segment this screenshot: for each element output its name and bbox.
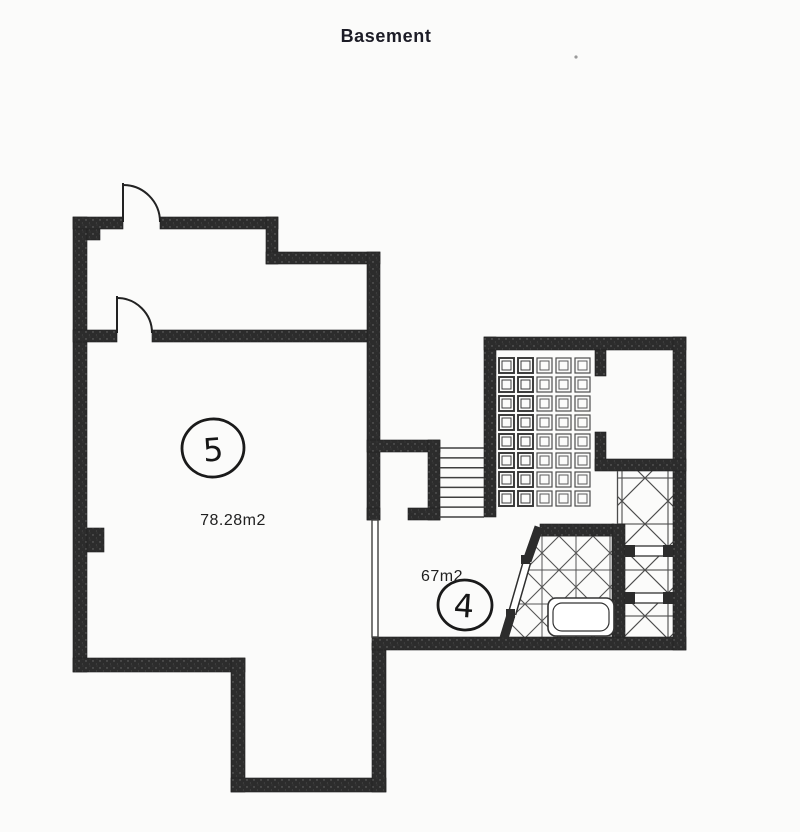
tile-cell (575, 472, 590, 487)
tile-cell (556, 453, 571, 468)
tile-cell-inner (540, 380, 549, 389)
tile-cell-inner (540, 437, 549, 446)
tile-cell (575, 377, 590, 392)
wall-bottom-right-section (372, 637, 686, 650)
tile-cell-inner (559, 380, 568, 389)
tile-cell (556, 377, 571, 392)
tile-cell (518, 453, 533, 468)
tile-cell (499, 434, 514, 449)
scan-speck (574, 55, 577, 58)
tile-cell (575, 491, 590, 506)
room-4-label: 4 67m2 (421, 568, 494, 632)
stairs-treads (440, 448, 484, 517)
tile-cell-inner (502, 456, 511, 465)
wall-top-a (73, 217, 123, 229)
tile-cell (537, 472, 552, 487)
tile-cell-inner (578, 475, 587, 484)
room-5-number: 5 (202, 430, 225, 469)
tile-cell-inner (578, 437, 587, 446)
tile-cell (575, 396, 590, 411)
tile-cell-inner (559, 361, 568, 370)
wall-room5-bottom-left (73, 658, 245, 672)
wall-room5-lower-right (372, 643, 386, 792)
tile-cell-inner (578, 361, 587, 370)
wall-shaft-stub (367, 508, 380, 520)
tile-cell-inner (521, 456, 530, 465)
tile-cell (499, 472, 514, 487)
wall-corridor-bottom-b (152, 330, 367, 342)
tile-cell (518, 491, 533, 506)
door-swing-icon-corridor (123, 183, 160, 222)
tile-grid (499, 358, 590, 506)
tile-cell (537, 377, 552, 392)
tile-cell (556, 434, 571, 449)
wall-left (73, 217, 87, 672)
tile-cell-inner (521, 418, 530, 427)
tile-cell-inner (578, 380, 587, 389)
tile-cell (499, 377, 514, 392)
floor-plan: 5 78.28m2 4 67m2 (0, 0, 800, 832)
room-4-number: 4 (452, 586, 475, 625)
tile-cell (575, 415, 590, 430)
tile-cell-inner (502, 418, 511, 427)
wall-storeroom-bottom (595, 459, 686, 471)
tile-cell-inner (540, 399, 549, 408)
tile-cell (556, 415, 571, 430)
tile-cell (537, 415, 552, 430)
tile-cell-inner (559, 399, 568, 408)
tile-cell (556, 472, 571, 487)
wall-top-b (160, 217, 278, 229)
tile-cell-inner (540, 361, 549, 370)
tile-cell-inner (540, 456, 549, 465)
door-swing-icon-room5 (117, 296, 152, 333)
tile-cell (499, 491, 514, 506)
tile-cell (556, 491, 571, 506)
tile-cell-inner (578, 494, 587, 503)
tile-cell (499, 396, 514, 411)
tile-cell-inner (521, 494, 530, 503)
shelf-partition-upper (625, 545, 673, 557)
tile-cell-inner (578, 456, 587, 465)
tile-cell (518, 396, 533, 411)
tile-cell-inner (540, 475, 549, 484)
wall-top-right-section (484, 337, 686, 350)
tile-cell (518, 358, 533, 373)
tile-cell (518, 415, 533, 430)
wall-room5-step-vert (231, 658, 245, 792)
tile-cell (499, 415, 514, 430)
wall-room5-bottom (231, 778, 386, 792)
tile-cell-inner (559, 437, 568, 446)
tile-cell-inner (559, 456, 568, 465)
bathtub (548, 598, 614, 636)
wall-corridor-bottom-a (73, 330, 117, 342)
tile-cell (575, 453, 590, 468)
tile-cell-inner (559, 475, 568, 484)
tile-cell-inner (502, 494, 511, 503)
tile-cell (556, 396, 571, 411)
tile-cell (575, 358, 590, 373)
tile-cell (537, 453, 552, 468)
tile-cell (575, 434, 590, 449)
tile-cell (556, 358, 571, 373)
tile-cell-inner (559, 418, 568, 427)
wall-bathroom-top (540, 524, 614, 536)
walls (73, 217, 686, 792)
tile-cell (537, 358, 552, 373)
tile-cell-inner (578, 418, 587, 427)
tile-cell-inner (559, 494, 568, 503)
thin-wall-room4-room5 (372, 520, 378, 637)
tile-cell-inner (521, 475, 530, 484)
tile-cell-inner (578, 399, 587, 408)
tile-cell (537, 491, 552, 506)
tile-cell (518, 377, 533, 392)
tile-cell (518, 434, 533, 449)
tile-cell-inner (502, 437, 511, 446)
tile-cell (518, 472, 533, 487)
tile-cell (537, 396, 552, 411)
tile-cell (499, 358, 514, 373)
tile-cell (537, 434, 552, 449)
tile-cell-inner (502, 380, 511, 389)
tile-cell-inner (502, 361, 511, 370)
wall-pilaster-mid (87, 528, 104, 552)
wall-gridroom-left (484, 337, 496, 517)
tile-cell-inner (521, 399, 530, 408)
wall-top-right (266, 252, 380, 264)
tile-cell-inner (521, 437, 530, 446)
tile-cell-inner (521, 380, 530, 389)
wall-partition-stub-upper (595, 350, 606, 376)
tile-cell-inner (502, 399, 511, 408)
stairs (440, 448, 484, 517)
room-4-area: 67m2 (421, 568, 463, 585)
wall-corridor-right (367, 252, 380, 520)
wall-outer-right (673, 337, 686, 650)
shelf-partition-lower (625, 592, 673, 604)
room-5-label: 5 78.28m2 (179, 416, 266, 529)
tile-cell-inner (540, 494, 549, 503)
tile-cell-inner (502, 475, 511, 484)
tile-cell-inner (521, 361, 530, 370)
room-5-area: 78.28m2 (200, 512, 266, 529)
wall-shaft-bottom (408, 508, 440, 520)
tile-cell-inner (540, 418, 549, 427)
tile-cell (499, 453, 514, 468)
